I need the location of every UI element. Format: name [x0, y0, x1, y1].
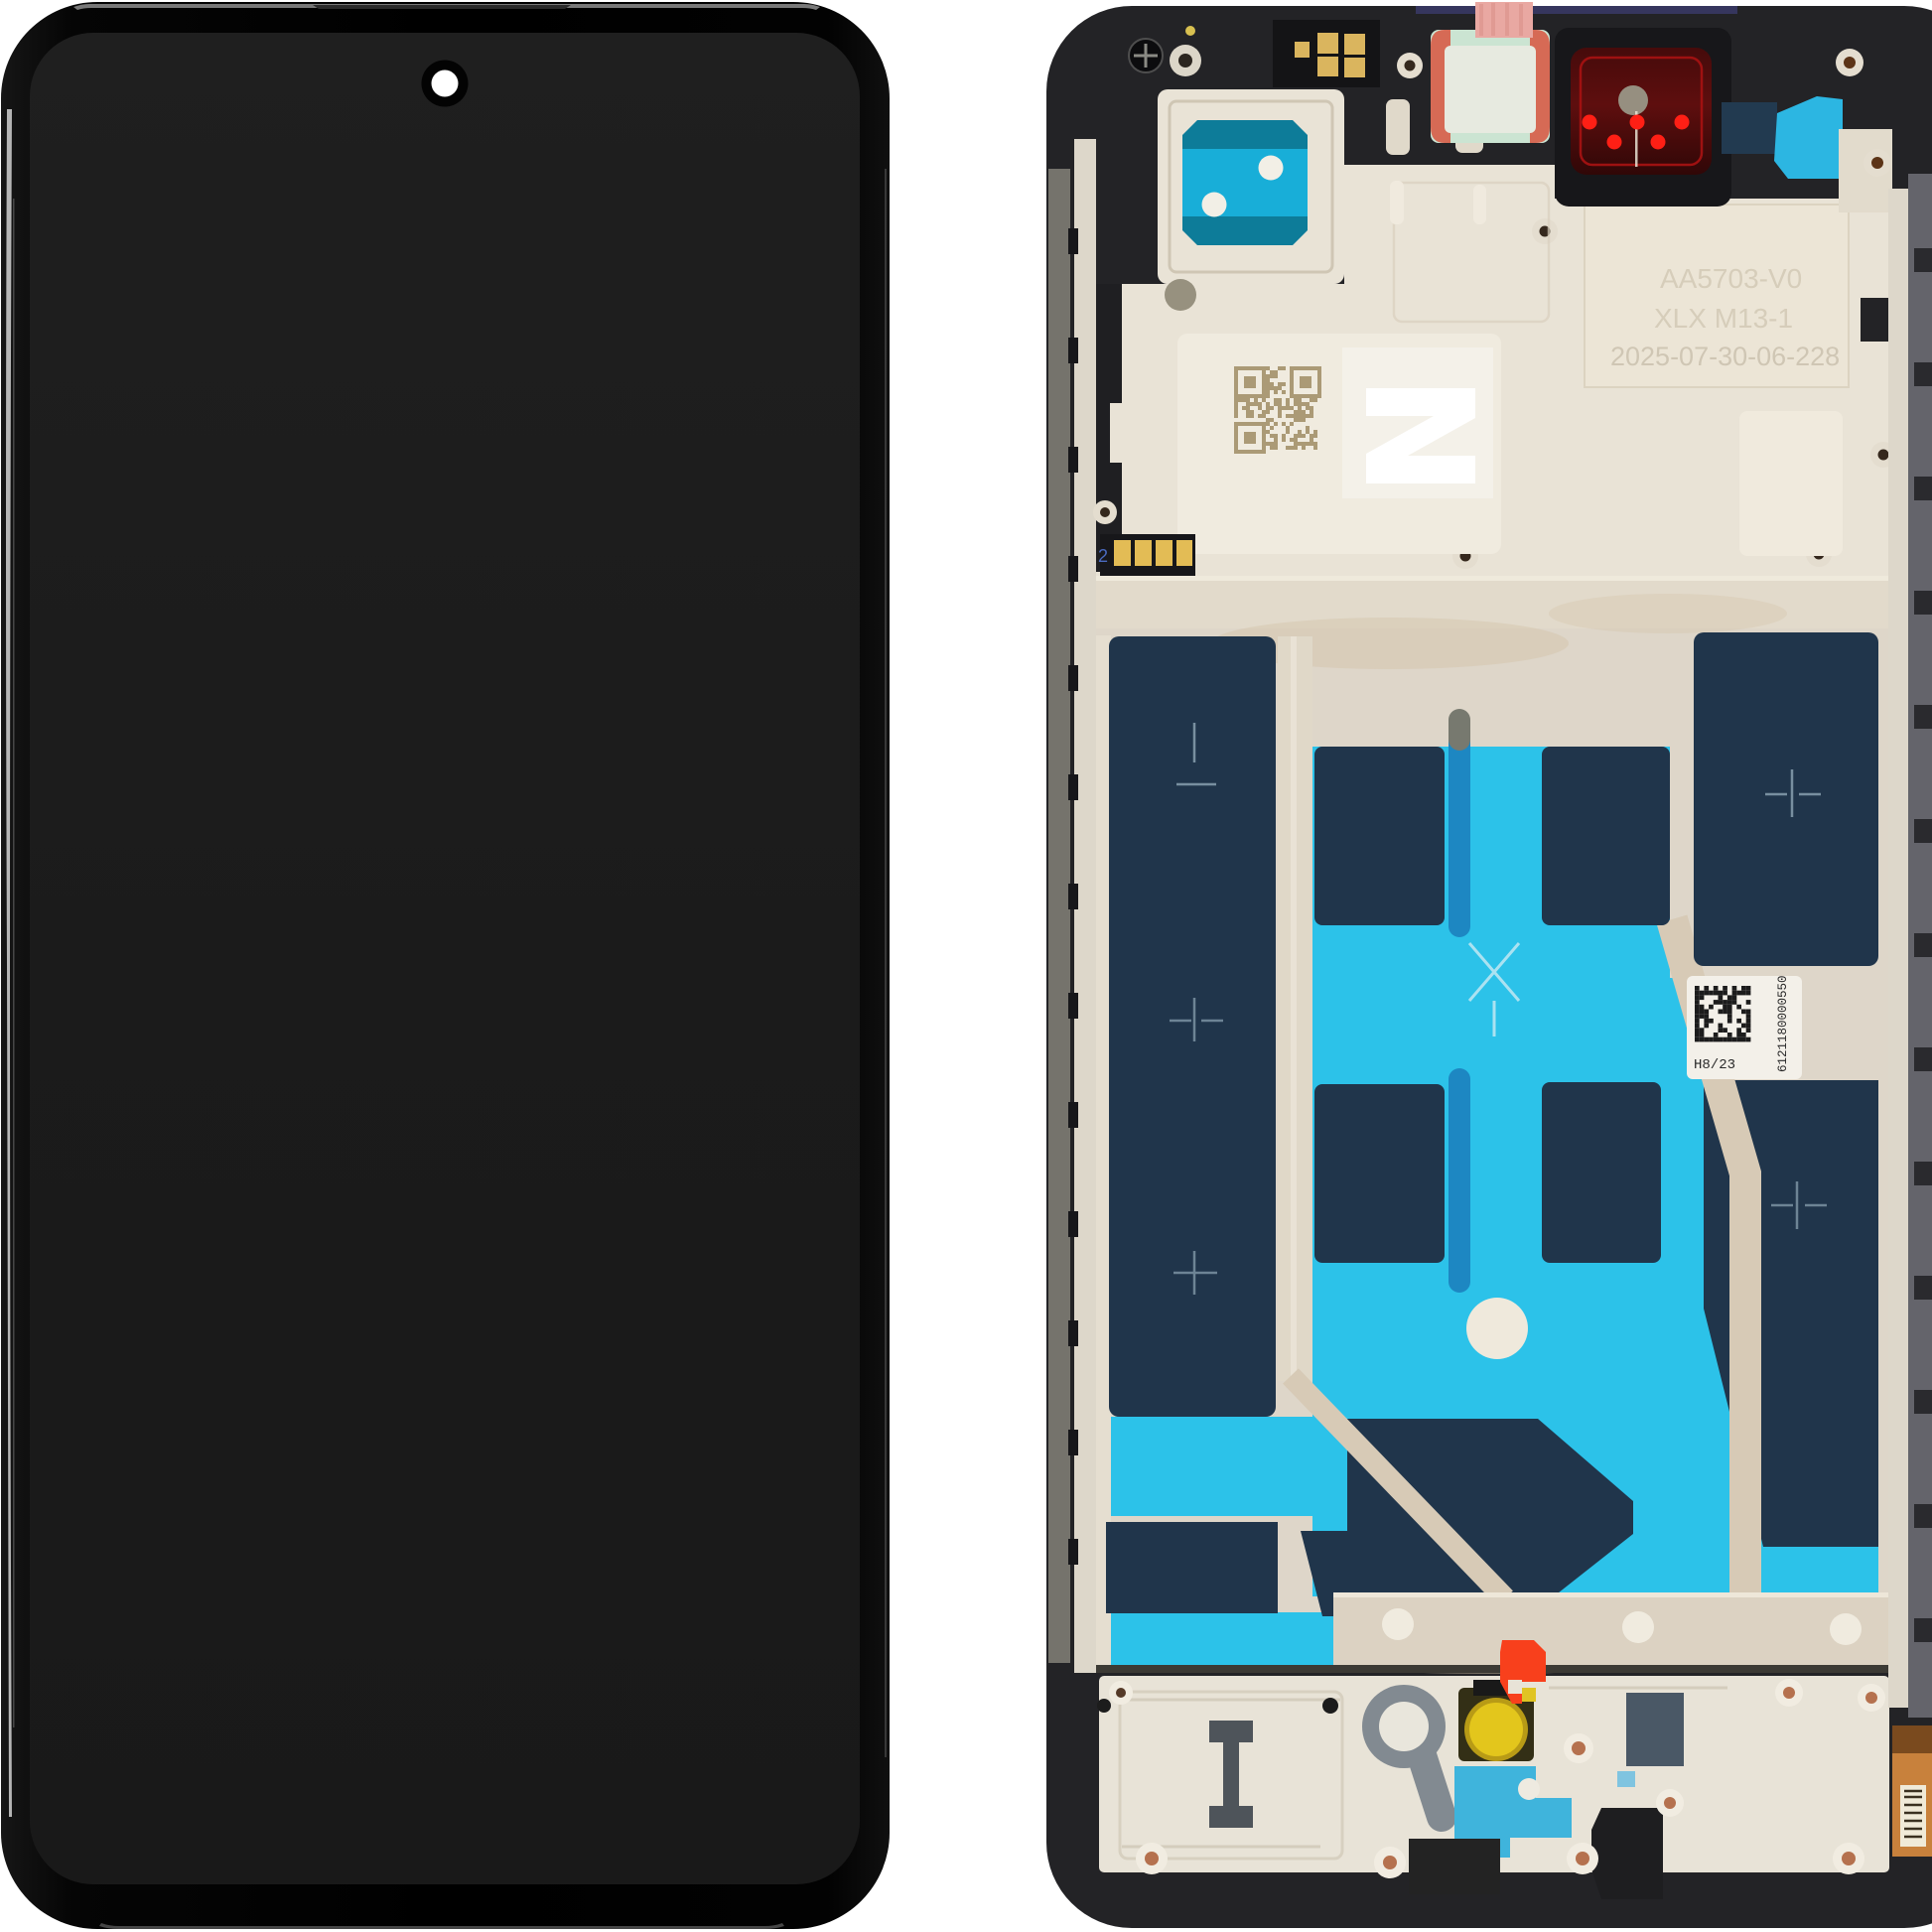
- svg-text:XLX M13-1: XLX M13-1: [1654, 303, 1793, 334]
- svg-text:2025-07-30-06-228: 2025-07-30-06-228: [1610, 342, 1840, 371]
- svg-text:2: 2: [1098, 546, 1108, 566]
- svg-text:6121180000550: 6121180000550: [1776, 975, 1790, 1072]
- svg-text:H8/23: H8/23: [1694, 1057, 1735, 1073]
- svg-text:AA5703-V0: AA5703-V0: [1660, 263, 1802, 294]
